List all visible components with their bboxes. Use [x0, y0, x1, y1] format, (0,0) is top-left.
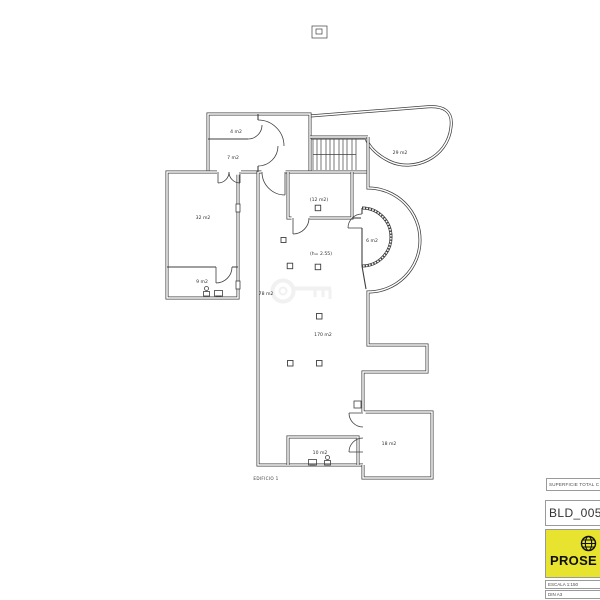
- floor-plan-page: 4 m2 7 m2 29 m2 32 m2 9 m2 (12 m2) 6 m2 …: [0, 0, 600, 600]
- room-label-4m2: 4 m2: [230, 129, 242, 135]
- staircase: [313, 139, 356, 170]
- scale-box: ESCALA 1:150: [545, 580, 600, 589]
- superficie-total-box: SUPERFICIE TOTAL C: [546, 478, 600, 491]
- sheet-size-box: DIN A3: [545, 590, 600, 599]
- logo-box: PROSE: [545, 529, 600, 578]
- building-label: EDIFICIO 1: [253, 476, 278, 481]
- height-note: (h= 2.55): [310, 251, 332, 257]
- room-label-18m2: 18 m2: [382, 441, 397, 447]
- floor-plan-drawing: 4 m2 7 m2 29 m2 32 m2 9 m2 (12 m2) 6 m2 …: [0, 0, 600, 600]
- roof-detail: [312, 26, 327, 38]
- room-label-170m2: 170 m2: [314, 332, 332, 338]
- room-label-10m2: 10 m2: [313, 450, 328, 456]
- room-label-7m2: 7 m2: [227, 155, 239, 161]
- room-label-29m2: 29 m2: [393, 150, 408, 156]
- bay-curved-wall: [362, 208, 391, 266]
- room-label-32m2: 32 m2: [196, 215, 211, 221]
- vestibule-walls: [208, 114, 310, 172]
- drawing-id-box: BLD_0052: [545, 500, 600, 526]
- columns: [281, 205, 322, 366]
- logo-text: PROSE: [550, 553, 597, 568]
- room-label-6m2: 6 m2: [366, 238, 378, 244]
- room-label-12m2: (12 m2): [310, 197, 328, 203]
- room-label-78m2: 78 m2: [259, 291, 274, 297]
- room-label-9m2: 9 m2: [196, 279, 208, 285]
- watermark-key-icon: [273, 281, 332, 302]
- globe-icon: [580, 535, 597, 552]
